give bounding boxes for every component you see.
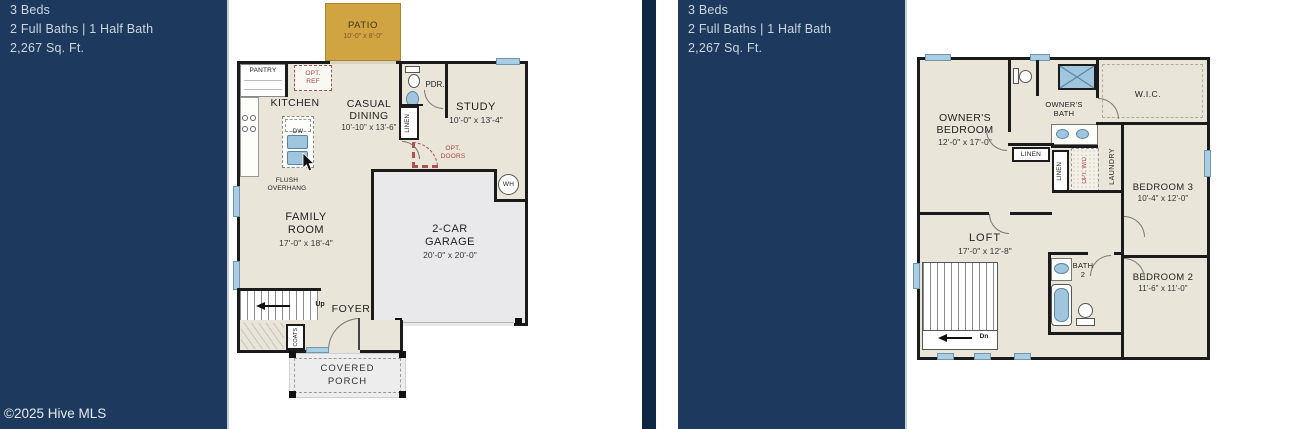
loft-line: LOFT — [948, 232, 1022, 245]
room-label-wic: W.I.C. — [1113, 89, 1183, 99]
bed2-dims: 11'-6" x 11'-0" — [1122, 284, 1204, 294]
room-label-owners-bath: OWNER'S BATH — [1038, 100, 1090, 118]
toilet-closet-wall — [1036, 60, 1039, 96]
linen-closet-vertical: LINEN — [1052, 150, 1069, 192]
bath2-wall-bottom — [1048, 332, 1124, 335]
room-label-laundry: LAUNDRY — [1101, 142, 1123, 190]
suite-wall — [917, 212, 989, 215]
room-label-bedroom3: BEDROOM 3 10'-4" x 12'-0" — [1122, 182, 1204, 204]
loft-dims: 17'-0" x 12'-8" — [948, 246, 1022, 256]
toilet-icon — [1078, 303, 1093, 318]
opt-wd-label: OPT. W/D — [1082, 157, 1088, 184]
hall-wall — [1008, 143, 1054, 146]
wic-wall-bottom — [1096, 122, 1207, 125]
dn-label: Dn — [976, 333, 992, 340]
laundry-wall-bottom — [1052, 190, 1124, 193]
bedroom2-wall-top — [1121, 255, 1210, 258]
window — [974, 353, 991, 360]
laundry-label: LAUNDRY — [1109, 148, 1116, 185]
bath2-line1: BATH — [1064, 261, 1102, 270]
window — [937, 353, 954, 360]
bath2-line2: 2 — [1064, 270, 1102, 279]
shower-icon — [1058, 64, 1096, 90]
room-label-loft: LOFT 17'-0" x 12'-8" — [948, 232, 1022, 256]
window — [1030, 54, 1050, 61]
room-label-bath2: BATH 2 — [1064, 261, 1102, 279]
owners-bedroom-wall — [1008, 60, 1011, 132]
bed3-dims: 10'-4" x 12'-0" — [1122, 194, 1204, 204]
toilet-icon — [1076, 318, 1095, 326]
vanity-sink-icon — [1076, 129, 1089, 139]
linen-hall-label: LINEN — [1021, 151, 1041, 159]
window — [913, 263, 920, 289]
obath-line1: OWNER'S — [1038, 100, 1090, 109]
wic-wall-left — [1096, 60, 1099, 98]
window — [1204, 150, 1211, 177]
linen-vert-label: LINEN — [1057, 162, 1065, 181]
second-floor-plan: OWNER'S BEDROOM 12'-0" x 17'-0" OWNER'S … — [0, 0, 1292, 429]
window — [925, 54, 951, 61]
toilet-icon — [1019, 70, 1032, 83]
vanity-sink-icon — [1056, 129, 1069, 139]
window — [1014, 353, 1031, 360]
mls-floorplan-strip: 3 Beds 2 Full Baths | 1 Half Bath 2,267 … — [0, 0, 1292, 429]
obath-line2: BATH — [1038, 109, 1090, 118]
linen-closet-hall: LINEN — [1012, 147, 1050, 162]
bathtub-icon — [1054, 288, 1069, 322]
owners-line1: OWNER'S — [922, 112, 1008, 124]
opt-washer-dryer-box: OPT. W/D — [1071, 148, 1099, 192]
stairs-dn-arrow-tail — [946, 337, 972, 339]
bed3-line: BEDROOM 3 — [1122, 182, 1204, 193]
suite-wall — [1010, 212, 1052, 215]
